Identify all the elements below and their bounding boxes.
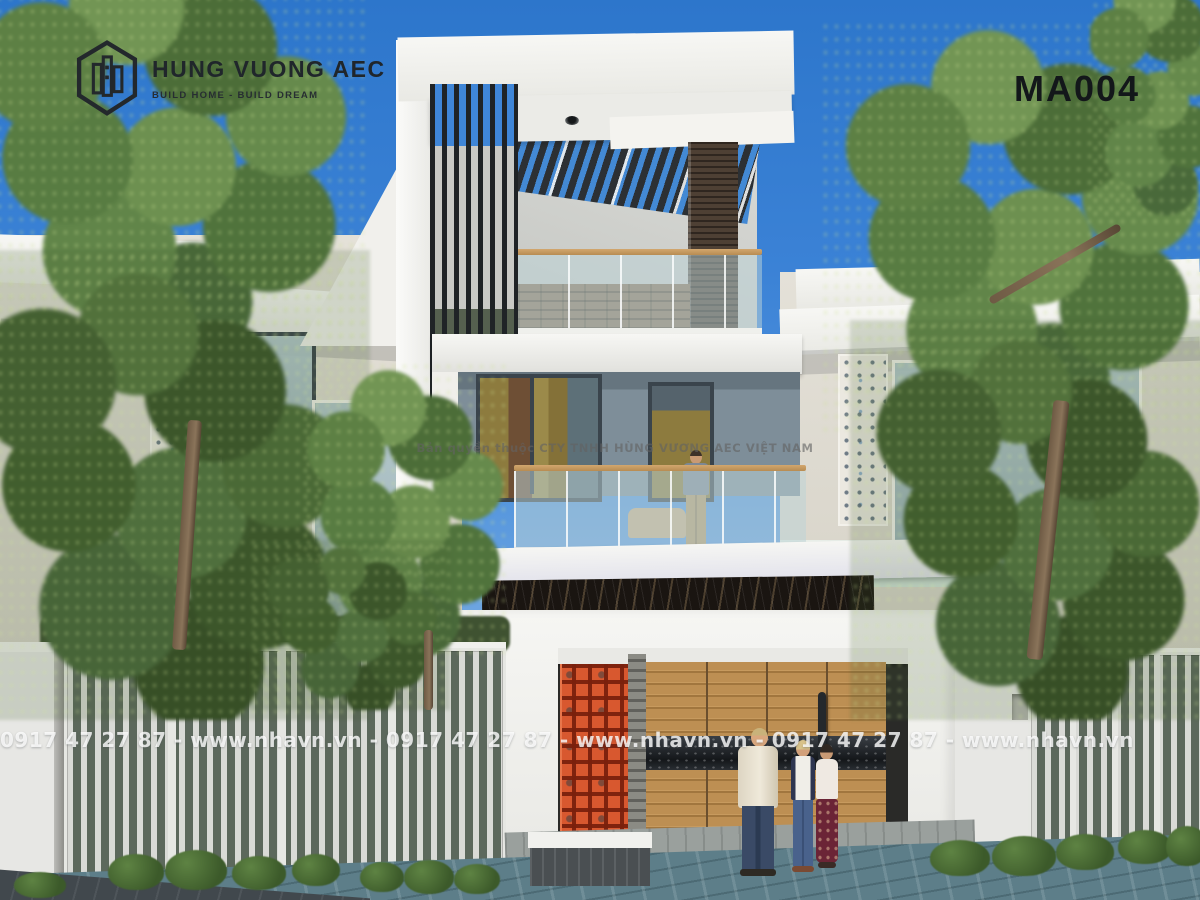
bush <box>14 872 66 898</box>
bush <box>165 850 227 890</box>
person-jeans <box>793 800 813 866</box>
bush <box>232 856 286 890</box>
second-balcony-glass-railing <box>514 471 806 550</box>
contact-watermark: 0917 47 27 87 - www.nhavn.vn - 0917 47 2… <box>0 728 1120 752</box>
downlight-icon <box>565 116 579 125</box>
planter-ledge <box>528 832 652 848</box>
logo-title: HUNG VUONG AEC <box>152 56 386 83</box>
bush <box>292 854 340 886</box>
tree-right-mass <box>850 320 1200 720</box>
person-sandals <box>818 862 836 868</box>
tree-top-right-corner <box>1090 0 1200 220</box>
bush <box>1056 834 1114 870</box>
bush <box>992 836 1056 876</box>
design-code: MA004 <box>1014 68 1140 110</box>
tree-lower-left <box>250 540 450 710</box>
person-skirt <box>816 799 838 863</box>
person-jeans <box>742 806 774 870</box>
sapling-trunk <box>424 630 433 710</box>
architectural-render-scene: Bản quyền thuộc CTY TNHH HÙNG VƯƠNG AEC … <box>0 0 1200 900</box>
planter-base <box>530 848 650 886</box>
logo-tagline: BUILD HOME - BUILD DREAM <box>152 90 386 101</box>
person-sweater <box>738 746 778 808</box>
bush <box>108 854 164 890</box>
bush <box>930 840 990 876</box>
person-blouse <box>816 759 838 799</box>
bush <box>1118 830 1172 864</box>
person-shoes <box>740 869 776 876</box>
hexagon-buildings-icon <box>76 40 138 116</box>
bush <box>1166 826 1200 866</box>
bush <box>454 864 500 894</box>
person-woman-2 <box>812 744 842 874</box>
company-logo: HUNG VUONG AEC BUILD HOME - BUILD DREAM <box>76 40 386 116</box>
bush <box>404 860 454 894</box>
person-sandals <box>792 866 814 872</box>
top-balcony-glass-railing <box>516 255 762 338</box>
bush <box>360 862 404 892</box>
orange-lattice-screen <box>560 664 628 840</box>
copyright-watermark: Bản quyền thuộc CTY TNHH HÙNG VƯƠNG AEC … <box>0 441 1200 455</box>
logo-text-block: HUNG VUONG AEC BUILD HOME - BUILD DREAM <box>152 40 386 101</box>
